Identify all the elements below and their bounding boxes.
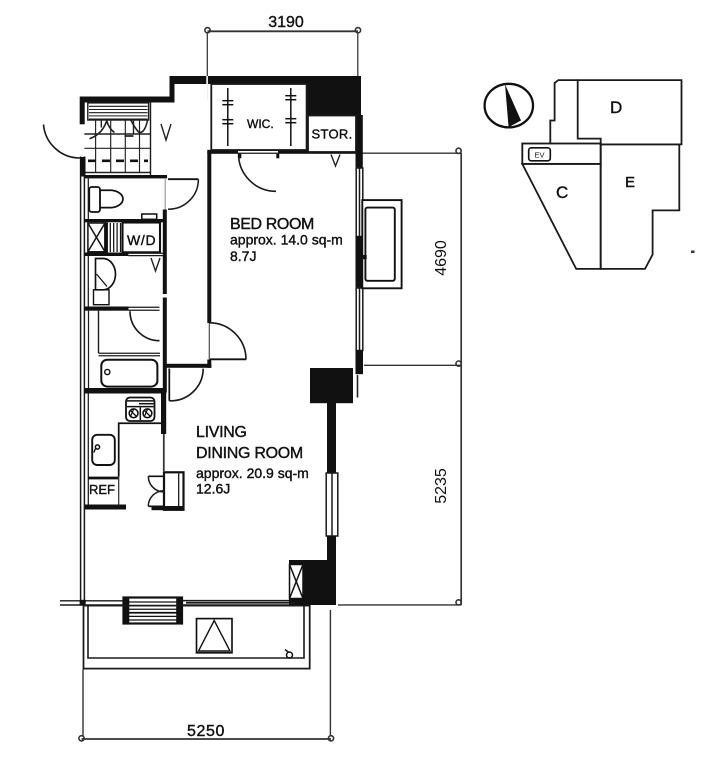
svg-text:E: E (625, 174, 635, 191)
svg-text:8.7J: 8.7J (230, 248, 256, 264)
svg-text:5250: 5250 (187, 723, 225, 740)
svg-text:approx. 14.0 sq-m: approx. 14.0 sq-m (230, 232, 343, 248)
svg-text:W/D: W/D (127, 232, 156, 248)
svg-text:WIC.: WIC. (247, 117, 274, 131)
svg-text:DINING ROOM: DINING ROOM (196, 445, 303, 462)
svg-text:LIVING: LIVING (196, 424, 247, 441)
svg-text:5235: 5235 (433, 468, 450, 504)
svg-text:BED ROOM: BED ROOM (230, 216, 314, 233)
svg-text:12.6J: 12.6J (196, 481, 230, 497)
svg-text:REF: REF (89, 482, 115, 497)
svg-text:EV: EV (535, 150, 545, 159)
svg-text:approx. 20.9 sq-m: approx. 20.9 sq-m (196, 465, 309, 481)
svg-text:4690: 4690 (433, 240, 450, 276)
svg-text:3190: 3190 (268, 14, 304, 31)
svg-text:STOR.: STOR. (312, 127, 353, 142)
svg-text:D: D (610, 98, 622, 117)
svg-text:C: C (556, 183, 568, 202)
